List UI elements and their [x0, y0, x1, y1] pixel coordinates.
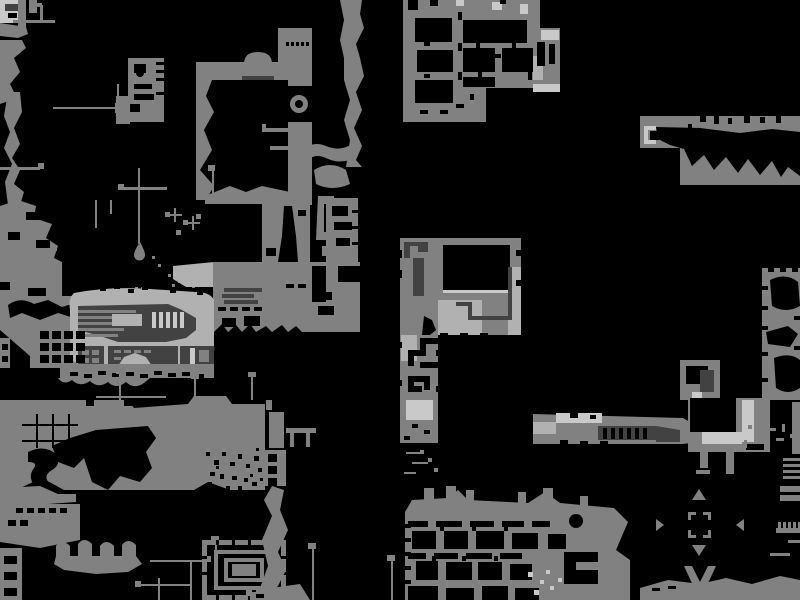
spiral-core: [232, 564, 256, 576]
corner-block-dark: [5, 4, 18, 11]
building-s-bottomrow: [408, 586, 539, 600]
bigbox-e-slit: [746, 444, 764, 450]
cave-ne-slot: [650, 131, 659, 140]
arm-light2: [533, 422, 556, 434]
room-e-window: [443, 245, 510, 292]
machine-room-disc: [136, 69, 144, 77]
ship-lower-right-slit: [190, 348, 195, 364]
bigbox-e-hole: [690, 398, 736, 432]
room-e-lightline: [443, 290, 508, 293]
ship-skirt: [60, 364, 214, 378]
game-screen: [0, 0, 800, 600]
left-edge-mid: [0, 338, 10, 368]
room-e-bar: [413, 258, 424, 296]
box-e-dark: [700, 370, 714, 392]
edge-se-strip: [792, 402, 800, 454]
corner-block-slot: [8, 13, 17, 18]
strip-e-light2: [406, 400, 433, 420]
misc-bottom-hole: [256, 594, 264, 598]
ship-core-island: [112, 314, 142, 326]
world-map-canvas: [0, 0, 800, 600]
strip-right-hole1: [770, 276, 800, 310]
ship-lower-right-block: [199, 350, 209, 362]
strip-right-hole3: [774, 355, 800, 392]
platform-notch: [338, 266, 360, 282]
mid-block-rooms: [268, 454, 277, 486]
porthole-hole: [295, 100, 303, 108]
left-col-s-rooms: [4, 556, 17, 596]
head-dome-ledge: [242, 76, 274, 80]
building-s-disc: [569, 514, 583, 528]
corner-block-light: [0, 0, 18, 23]
